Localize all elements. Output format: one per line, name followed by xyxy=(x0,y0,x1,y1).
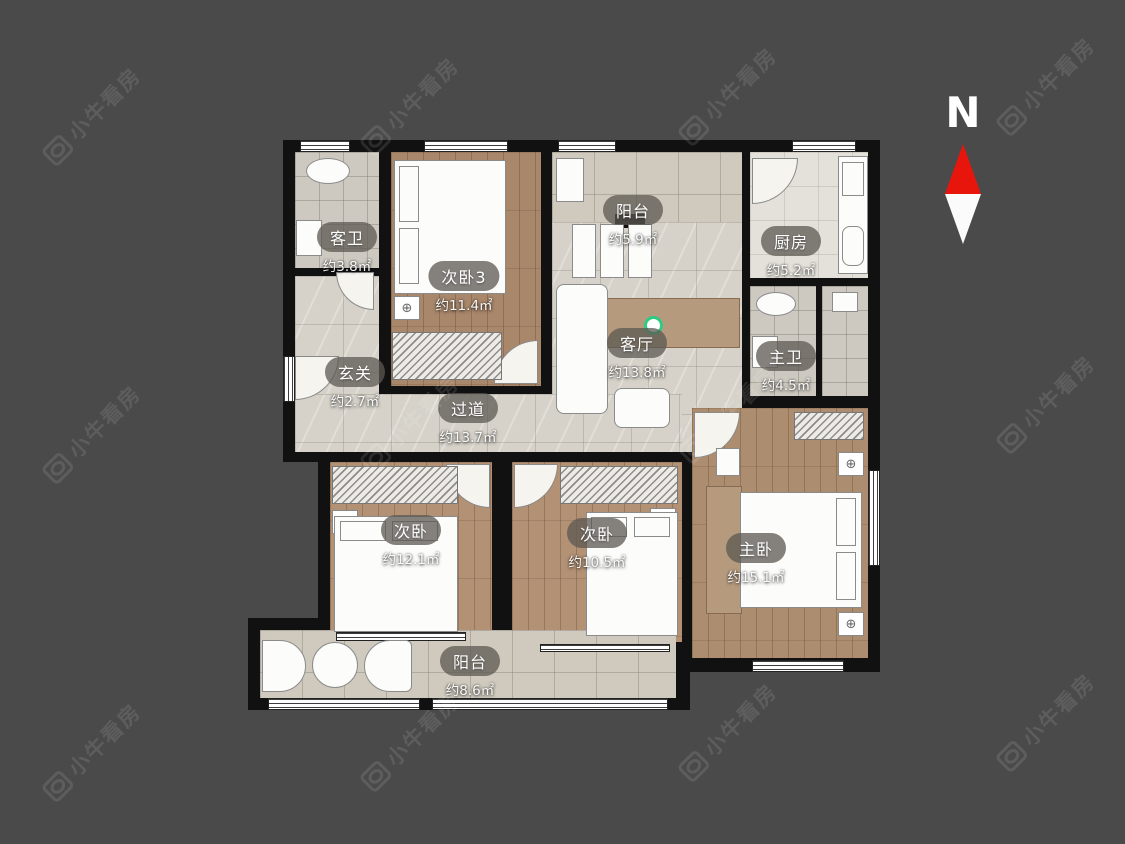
location-pin-dot xyxy=(644,316,663,335)
pillow xyxy=(399,228,419,284)
ac-vent-icon: ⊕ xyxy=(838,612,864,636)
wardrobe xyxy=(560,466,678,504)
toilet xyxy=(756,292,796,316)
bedroom-rug xyxy=(706,486,742,614)
wardrobe xyxy=(332,466,458,504)
pillow xyxy=(836,498,856,546)
window xyxy=(424,140,508,152)
sofa xyxy=(556,284,608,414)
laundry-basin xyxy=(364,640,412,692)
sideboard xyxy=(600,224,624,278)
wardrobe xyxy=(392,332,502,380)
kitchen-sink xyxy=(842,226,864,266)
pillow xyxy=(392,521,438,541)
compass-arrow-north xyxy=(945,144,981,194)
bathroom-sink xyxy=(296,220,322,256)
balcony-cabinet xyxy=(556,158,584,202)
coffee-table xyxy=(614,388,670,428)
floorplan-screen: ⊕ ⊕ ⊕ ⊕ ⊕ xyxy=(0,0,1125,844)
window xyxy=(558,140,616,152)
pillow xyxy=(591,517,627,537)
shower-fixture xyxy=(832,292,858,312)
ac-vent-icon: ⊕ xyxy=(838,452,864,476)
window xyxy=(752,660,844,672)
pillow xyxy=(634,517,670,537)
compass-arrow-south xyxy=(945,194,981,244)
ac-vent-icon: ⊕ xyxy=(394,296,420,320)
entry-door-gap xyxy=(283,356,295,402)
sideboard xyxy=(628,224,652,278)
sideboard xyxy=(572,224,596,278)
window xyxy=(792,140,856,152)
pillow xyxy=(836,552,856,600)
window xyxy=(300,140,350,152)
window xyxy=(540,644,670,652)
window xyxy=(268,698,420,710)
pillow xyxy=(399,166,419,222)
washing-machine xyxy=(312,642,358,688)
stove xyxy=(842,162,864,196)
window xyxy=(432,698,668,710)
bathroom-sink xyxy=(752,336,778,368)
pillow xyxy=(340,521,386,541)
toilet xyxy=(306,158,350,184)
compass: N xyxy=(938,92,988,244)
wardrobe xyxy=(794,412,864,440)
nightstand xyxy=(716,448,740,476)
window xyxy=(868,470,880,566)
compass-north-label: N xyxy=(945,92,980,134)
